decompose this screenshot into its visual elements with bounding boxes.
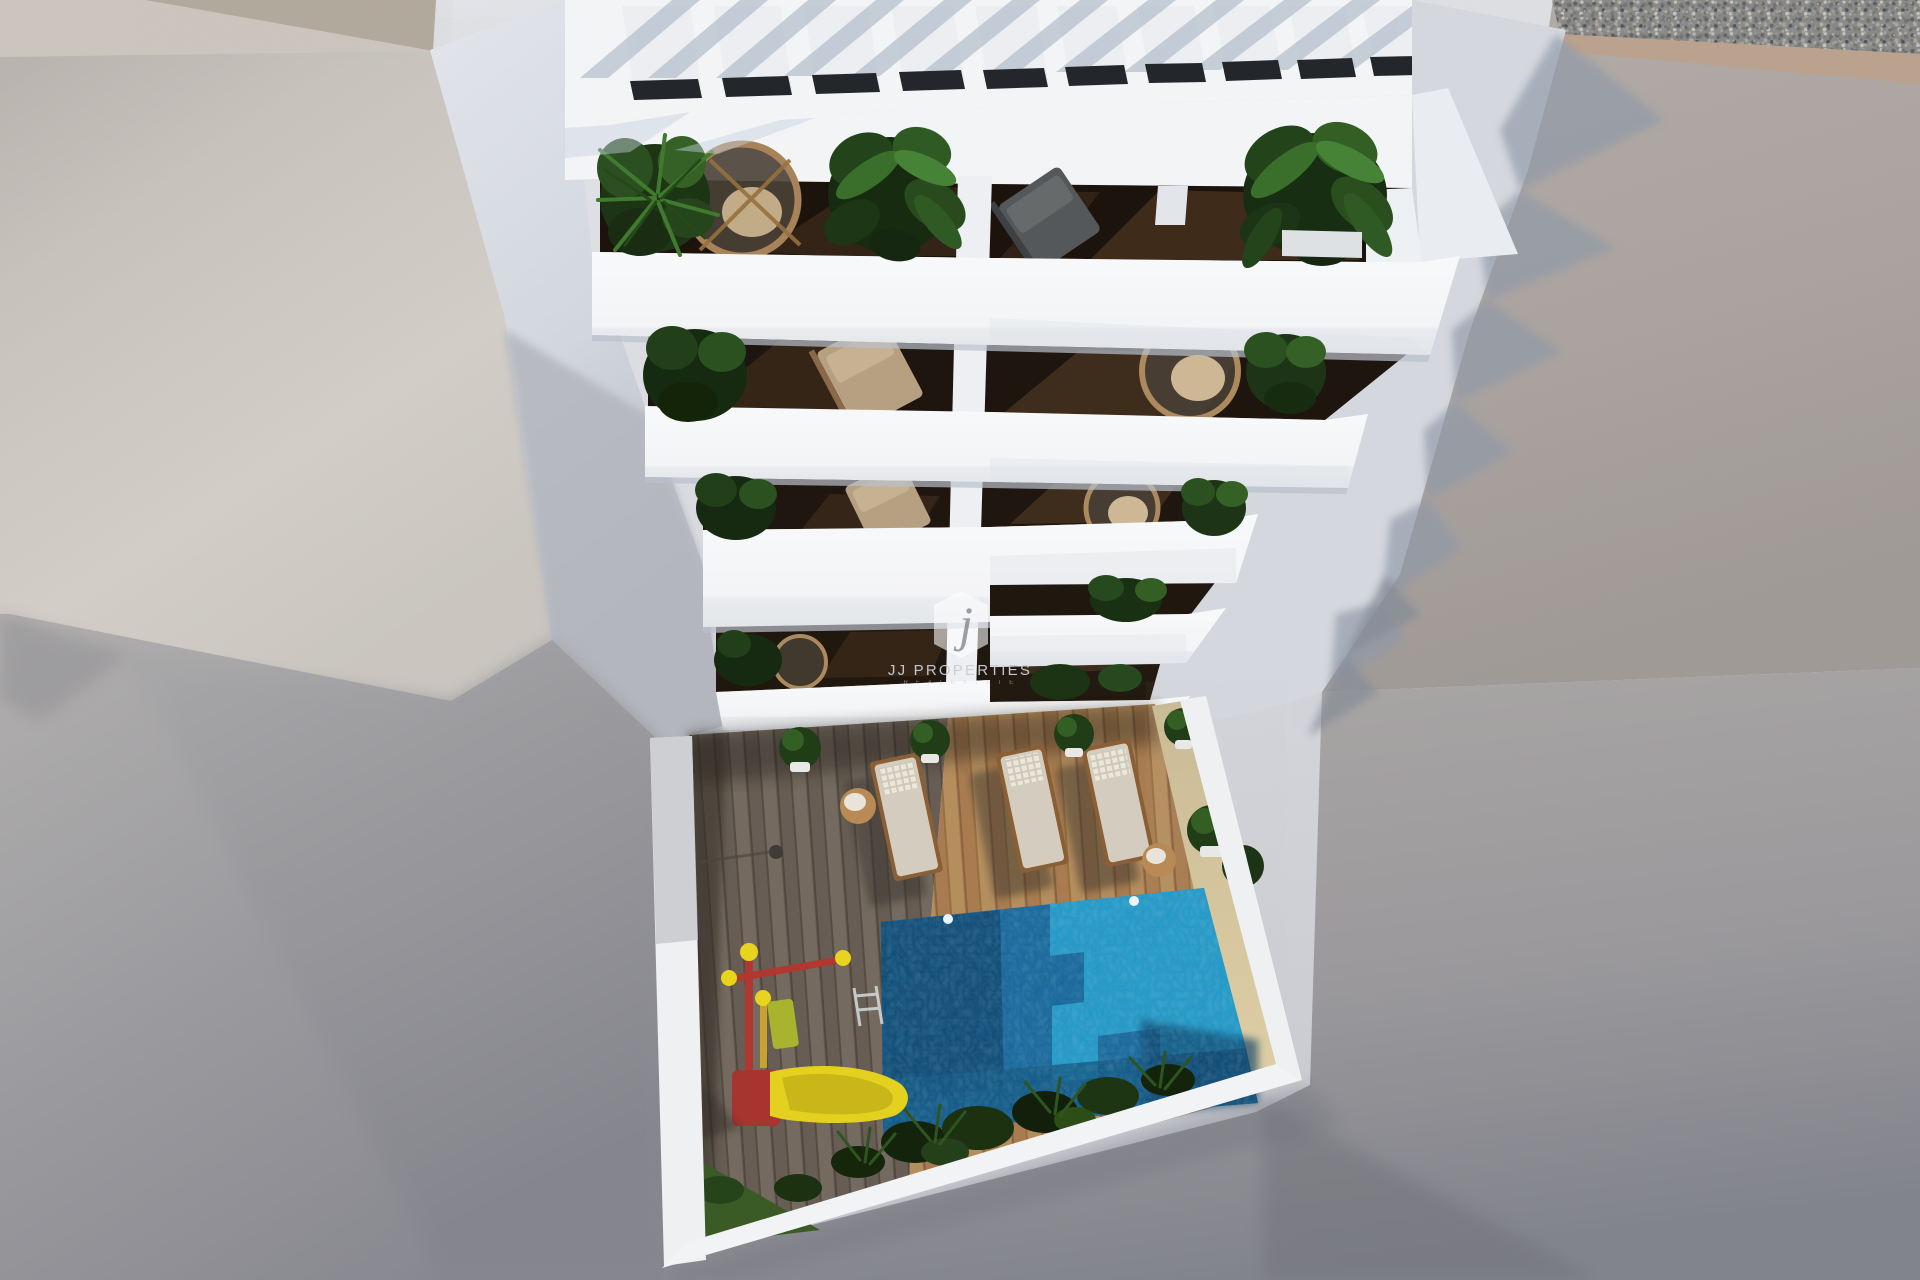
svg-text:R E A L E S T A T E: R E A L E S T A T E bbox=[904, 680, 1017, 686]
svg-text:JJ PROPERTIES: JJ PROPERTIES bbox=[888, 662, 1032, 679]
